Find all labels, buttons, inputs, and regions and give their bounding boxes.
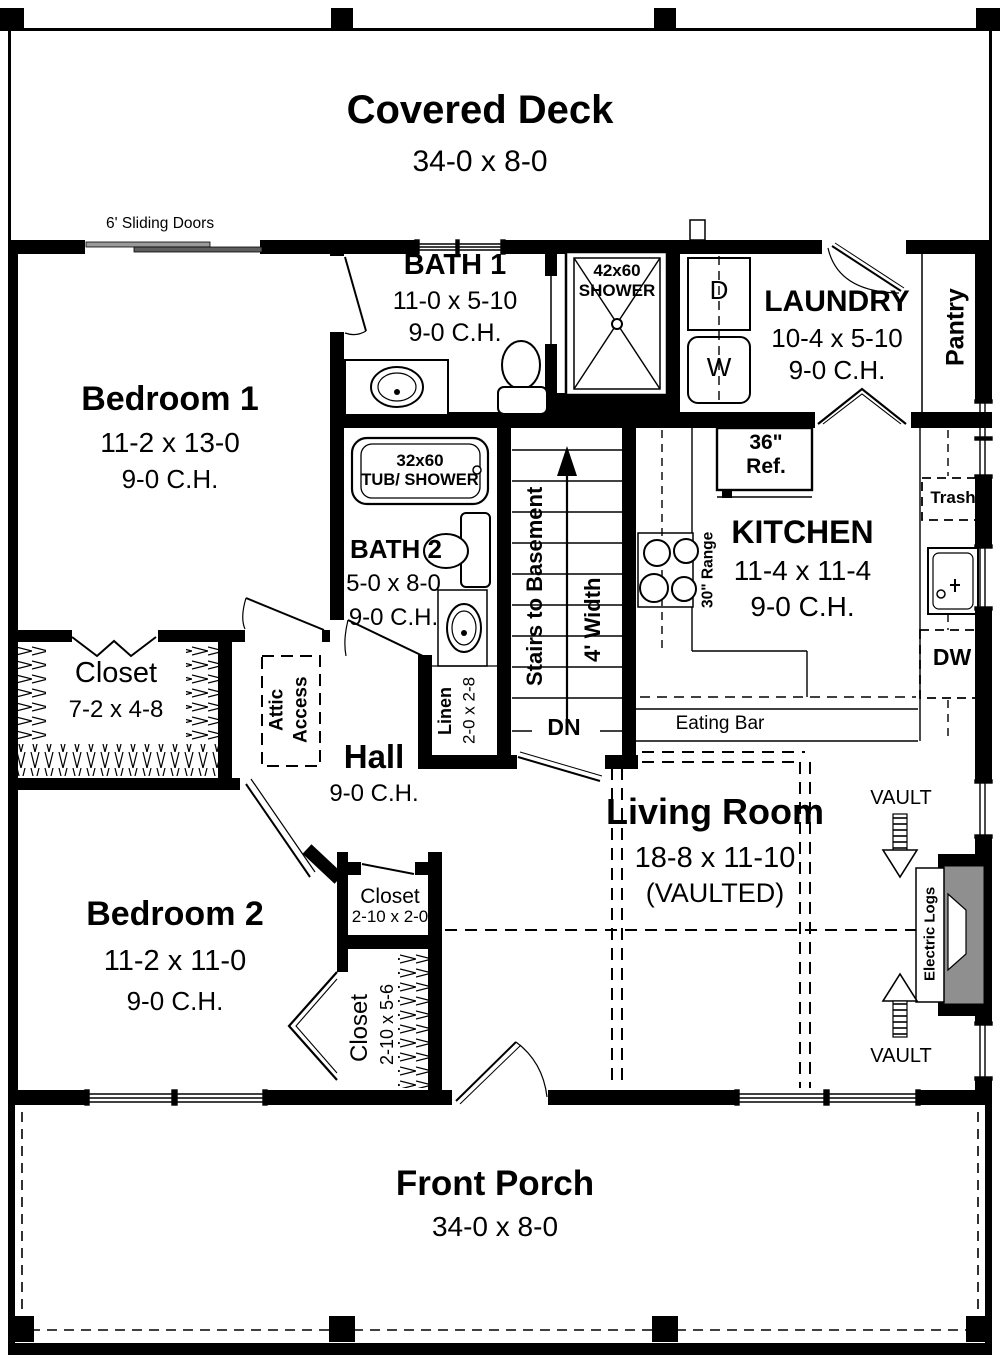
laundry-west-wall <box>667 240 680 428</box>
porch-post <box>329 1316 355 1342</box>
stairs-door-opening <box>517 755 605 769</box>
tub-label: TUB/ SHOWER <box>358 472 482 489</box>
vault-arrow-down-head <box>883 850 917 877</box>
bedroom2-ch: 9-0 C.H. <box>45 988 305 1015</box>
shower-label: SHOWER <box>569 282 665 300</box>
floor-plan: Covered Deck 34-0 x 8-0 6' Sliding Doors… <box>0 0 1000 1355</box>
dryer-label: D <box>688 277 750 304</box>
vault-arrow-up-shaft <box>893 1001 907 1037</box>
dw-label: DW <box>920 646 984 670</box>
attic-access-line1: Attic <box>266 660 288 760</box>
bedroom2-name: Bedroom 2 <box>45 897 305 932</box>
closet-tall-name: Closet <box>346 978 374 1078</box>
bedroom1-door-leaf <box>246 598 324 630</box>
closet-small-name: Closet <box>348 886 432 908</box>
bedroom2-dims: 11-2 x 11-0 <box>45 946 305 976</box>
bedroom1-ch: 9-0 C.H. <box>55 466 285 493</box>
bath2-dims: 5-0 x 8-0 <box>336 572 451 597</box>
bath1-west-wall <box>330 240 344 256</box>
ref-label: Ref. <box>722 456 810 478</box>
deck-post <box>654 8 676 30</box>
sliding-door-panel <box>86 242 210 247</box>
porch-post <box>8 1316 34 1342</box>
stairs-east-wall <box>622 412 636 767</box>
closet-divider-wall <box>337 935 442 949</box>
bath2-name: BATH 2 <box>338 536 454 563</box>
closet-small-dims: 2-10 x 2-0 <box>344 908 436 926</box>
sliding-door-panel <box>134 247 262 252</box>
kitchen-sink <box>928 548 978 614</box>
burner <box>644 540 670 566</box>
trash-label: Trash <box>922 489 984 507</box>
living-name: Living Room <box>575 793 855 830</box>
fireplace-label: Electric Logs <box>917 870 943 998</box>
bath1-toilet-bowl <box>502 341 540 389</box>
porch-post <box>652 1316 678 1342</box>
kitchen-sink-basin <box>933 553 973 609</box>
living-vaulted: (VAULTED) <box>585 879 845 907</box>
linen-dims: 2-0 x 2-8 <box>458 664 480 756</box>
deck-post <box>0 8 24 30</box>
bath1-door-arc <box>345 331 366 335</box>
stairs-width-label: 4' Width <box>579 545 607 695</box>
vault-arrow-down-shaft <box>893 814 907 852</box>
bath1-name: BATH 1 <box>370 250 540 280</box>
stairs-dn-label: DN <box>534 716 594 740</box>
closet-small-door-leaf <box>362 864 414 874</box>
closet-small-stub <box>348 862 361 875</box>
bath1-door-leaf <box>345 257 366 331</box>
bedroom1-dims: 11-2 x 13-0 <box>55 428 285 457</box>
laundry-dims: 10-4 x 5-10 <box>752 325 922 352</box>
sliding-doors-label: 6' Sliding Doors <box>106 216 276 232</box>
porch-edge <box>8 1343 992 1355</box>
living-window2-opening <box>975 1022 992 1080</box>
deck-dims: 34-0 x 8-0 <box>330 146 630 177</box>
bath1-ch: 9-0 C.H. <box>370 320 540 346</box>
tub-size: 32x60 <box>370 452 470 470</box>
closet-small-stub <box>415 862 429 875</box>
hall-closet-east-wall <box>218 630 232 790</box>
deck-side-line <box>989 31 992 240</box>
vault-arrow-up-head <box>883 974 917 1001</box>
bedroom2-angled-wall <box>246 784 310 877</box>
deck-post <box>976 8 1000 30</box>
west-wall <box>8 240 18 1105</box>
kitchen-ch: 9-0 C.H. <box>695 592 910 621</box>
vault-label-bottom: VAULT <box>855 1046 947 1067</box>
kitchen-dims: 11-4 x 11-4 <box>695 556 910 585</box>
shower-wall-stub <box>545 240 557 276</box>
hall-closet-south-wall <box>8 778 240 790</box>
deck-side-line <box>8 31 11 240</box>
porch-dims: 34-0 x 8-0 <box>340 1212 650 1241</box>
bedroom1-door-opening <box>245 630 322 642</box>
shower-drain <box>612 319 622 329</box>
bath1-dims: 11-0 x 5-10 <box>370 288 540 314</box>
bedroom1-door-arc <box>243 598 246 629</box>
vault-arrows <box>883 814 917 1037</box>
deck-name: Covered Deck <box>280 90 680 132</box>
front-door-arc <box>516 1042 547 1097</box>
range-label: 30" Range <box>696 520 720 620</box>
porch-name: Front Porch <box>340 1166 650 1202</box>
porch-post <box>966 1316 992 1342</box>
linen-name: Linen <box>434 668 456 754</box>
living-dims: 18-8 x 11-10 <box>585 843 845 873</box>
bath2-ch: 9-0 C.H. <box>336 606 451 631</box>
hall-ch: 9-0 C.H. <box>316 782 432 807</box>
attic-access-line2: Access <box>290 660 312 760</box>
deck-roof-line <box>0 28 1000 31</box>
eating-bar-label: Eating Bar <box>656 714 784 734</box>
hall-closet-dims: 7-2 x 4-8 <box>56 698 176 723</box>
ref-size: 36" <box>722 432 810 454</box>
bedroom2-angled-stub <box>307 849 339 879</box>
pantry-label: Pantry <box>940 268 972 386</box>
stairs-label: Stairs to Basement <box>521 455 549 717</box>
hall-closet-name: Closet <box>60 658 172 688</box>
burner <box>640 574 668 602</box>
bath1-west-wall <box>330 332 344 412</box>
washer-label: W <box>688 354 750 381</box>
porch-side <box>8 1105 15 1345</box>
deck-post <box>331 8 353 30</box>
vault-label-top: VAULT <box>855 788 947 809</box>
sink-drain <box>937 590 945 598</box>
stairs-west-wall <box>497 412 511 767</box>
bedroom2-angled-wall <box>251 779 315 872</box>
hall-name: Hall <box>318 740 430 774</box>
bedroom1-name: Bedroom 1 <box>55 382 285 417</box>
porch-side <box>985 1105 992 1345</box>
deck-door-jamb <box>690 220 705 240</box>
burner <box>672 577 696 601</box>
kitchen-name: KITCHEN <box>695 516 910 549</box>
shower-size: 42x60 <box>573 262 661 280</box>
living-window1-opening <box>975 780 992 838</box>
laundry-ch: 9-0 C.H. <box>752 357 922 384</box>
bifold-opening <box>72 630 158 642</box>
bath1-toilet-tank <box>498 387 547 414</box>
closet-tall-dims: 2-10 x 5-6 <box>376 966 398 1082</box>
laundry-name: LAUNDRY <box>752 286 922 317</box>
